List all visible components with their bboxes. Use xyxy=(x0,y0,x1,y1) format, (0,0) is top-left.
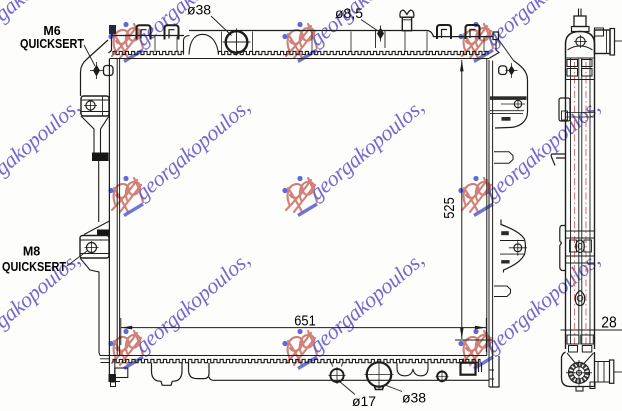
svg-text:651: 651 xyxy=(294,314,316,330)
svg-text:525: 525 xyxy=(442,197,458,219)
svg-text:QUICKSERT: QUICKSERT xyxy=(2,259,66,274)
svg-text:ø8,5: ø8,5 xyxy=(335,5,363,21)
svg-text:ø38: ø38 xyxy=(187,2,211,18)
svg-text:ø38: ø38 xyxy=(402,390,426,406)
svg-text:28: 28 xyxy=(601,315,617,332)
svg-text:M8: M8 xyxy=(23,245,40,259)
svg-text:QUICKSERT: QUICKSERT xyxy=(20,36,84,51)
svg-text:ø17: ø17 xyxy=(352,393,376,409)
